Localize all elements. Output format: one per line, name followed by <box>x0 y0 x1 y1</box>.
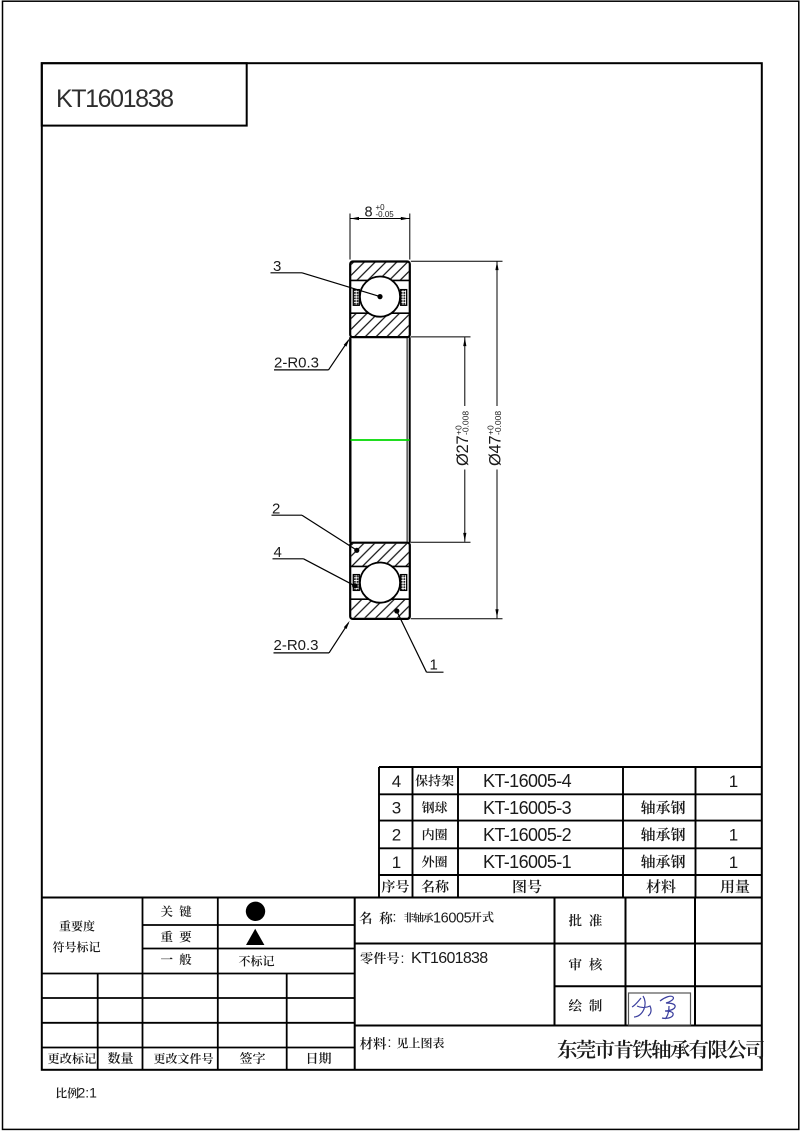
svg-text:2: 2 <box>392 826 401 845</box>
svg-text:1: 1 <box>430 657 438 674</box>
svg-text:1: 1 <box>729 772 738 791</box>
svg-text:2:1: 2:1 <box>78 1085 98 1101</box>
svg-text:KT-16005-2: KT-16005-2 <box>483 825 572 845</box>
svg-text:2-R0.3: 2-R0.3 <box>274 355 319 372</box>
svg-text:-0.05: -0.05 <box>376 210 395 219</box>
svg-text:1: 1 <box>392 853 401 872</box>
svg-text:Ø27: Ø27 <box>454 436 472 466</box>
svg-text:4: 4 <box>392 772 401 791</box>
svg-text::: : <box>388 1034 392 1050</box>
svg-text::: : <box>401 950 405 966</box>
svg-text:-0.008: -0.008 <box>493 411 503 435</box>
svg-text:KT1601838: KT1601838 <box>411 950 488 967</box>
svg-text:3: 3 <box>392 799 401 818</box>
svg-text:1: 1 <box>729 826 738 845</box>
svg-text:2-R0.3: 2-R0.3 <box>274 637 319 654</box>
svg-text:16005: 16005 <box>433 911 472 927</box>
svg-text:KT-16005-1: KT-16005-1 <box>483 852 572 872</box>
svg-text:-0.008: -0.008 <box>461 411 471 435</box>
svg-text:KT1601838: KT1601838 <box>56 85 173 113</box>
svg-text:KT-16005-3: KT-16005-3 <box>483 798 572 818</box>
svg-text:KT-16005-4: KT-16005-4 <box>483 771 572 791</box>
svg-text:Ø47: Ø47 <box>486 436 504 466</box>
svg-text:8: 8 <box>365 205 373 221</box>
svg-text:1: 1 <box>729 853 738 872</box>
svg-text::: : <box>393 909 397 925</box>
